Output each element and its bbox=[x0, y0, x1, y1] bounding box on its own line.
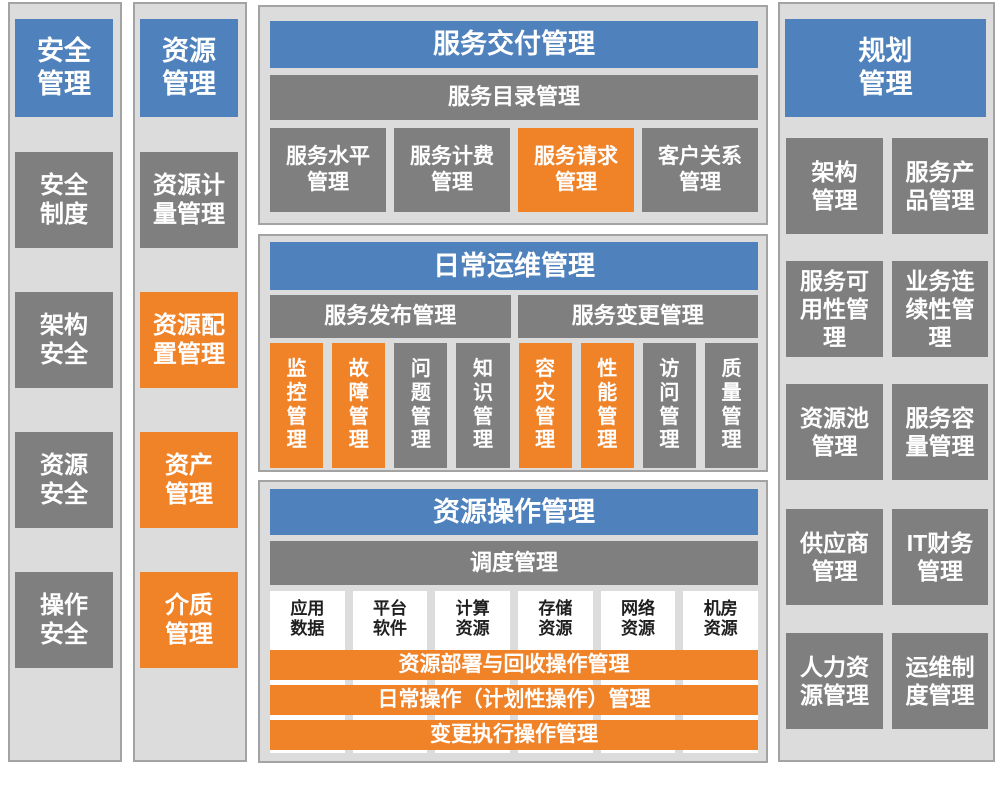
daily-operations-title: 日常运维管理 bbox=[270, 242, 758, 290]
resource-item-configuration: 资源配 置管理 bbox=[140, 292, 238, 388]
change-execution-bar: 变更执行操作管理 bbox=[270, 720, 758, 750]
resource-operations-grid: 应用 数据 平台 软件 计算 资源 存储 资源 网络 资源 机房 资源 资源部署… bbox=[270, 591, 758, 753]
monitoring-box: 监 控 管 理 bbox=[270, 343, 323, 468]
service-delivery-title: 服务交付管理 bbox=[270, 21, 758, 68]
service-billing-box: 服务计费 管理 bbox=[394, 128, 510, 212]
daily-operations-panel: 日常运维管理 服务发布管理 服务变更管理 监 控 管 理 故 障 管 理 问 题… bbox=[258, 234, 768, 472]
resource-pool-box: 资源池 管理 bbox=[786, 384, 883, 480]
security-item-institution: 安全 制度 bbox=[15, 152, 113, 248]
resource-title: 资源 管理 bbox=[140, 19, 238, 117]
service-change-bar: 服务变更管理 bbox=[518, 295, 759, 338]
resource-item-media: 介质 管理 bbox=[140, 572, 238, 668]
supplier-mgmt-box: 供应商 管理 bbox=[786, 509, 883, 605]
security-item-operation: 操作 安全 bbox=[15, 572, 113, 668]
quality-box: 质 量 管 理 bbox=[705, 343, 758, 468]
platform-software-label: 平台 软件 bbox=[353, 591, 428, 647]
customer-relation-box: 客户关系 管理 bbox=[642, 128, 758, 212]
human-resource-box: 人力资 源管理 bbox=[786, 633, 883, 729]
performance-box: 性 能 管 理 bbox=[581, 343, 634, 468]
security-item-architecture: 架构 安全 bbox=[15, 292, 113, 388]
resource-operations-title: 资源操作管理 bbox=[270, 489, 758, 535]
scheduling-bar: 调度管理 bbox=[270, 541, 758, 585]
access-box: 访 问 管 理 bbox=[643, 343, 696, 468]
planning-column-panel: 规划 管理 架构 管理 服务产 品管理 服务可 用性管 理 业务连 续性管 理 … bbox=[778, 2, 995, 762]
app-data-label: 应用 数据 bbox=[270, 591, 345, 647]
compute-resource-label: 计算 资源 bbox=[435, 591, 510, 647]
daily-operations-box-row: 监 控 管 理 故 障 管 理 问 题 管 理 知 识 管 理 容 灾 管 理 … bbox=[270, 343, 758, 468]
network-resource-label: 网络 资源 bbox=[601, 591, 676, 647]
knowledge-box: 知 识 管 理 bbox=[456, 343, 509, 468]
storage-resource-label: 存储 资源 bbox=[518, 591, 593, 647]
resource-item-metering: 资源计 量管理 bbox=[140, 152, 238, 248]
architecture-diagram: 安全 管理 安全 制度 架构 安全 资源 安全 操作 安全 资源 管理 资源计 … bbox=[0, 0, 1000, 785]
security-item-resource: 资源 安全 bbox=[15, 432, 113, 528]
security-title: 安全 管理 bbox=[15, 19, 113, 117]
service-level-box: 服务水平 管理 bbox=[270, 128, 386, 212]
fault-box: 故 障 管 理 bbox=[332, 343, 385, 468]
service-product-box: 服务产 品管理 bbox=[892, 138, 988, 234]
service-catalog-bar: 服务目录管理 bbox=[270, 75, 758, 120]
planning-title: 规划 管理 bbox=[785, 19, 986, 117]
resource-column-panel: 资源 管理 资源计 量管理 资源配 置管理 资产 管理 介质 管理 bbox=[133, 2, 247, 762]
deploy-recycle-bar: 资源部署与回收操作管理 bbox=[270, 650, 758, 680]
service-delivery-panel: 服务交付管理 服务目录管理 服务水平 管理 服务计费 管理 服务请求 管理 客户… bbox=[258, 5, 768, 225]
it-finance-box: IT财务 管理 bbox=[892, 509, 988, 605]
service-release-bar: 服务发布管理 bbox=[270, 295, 511, 338]
service-delivery-box-row: 服务水平 管理 服务计费 管理 服务请求 管理 客户关系 管理 bbox=[270, 128, 758, 212]
service-availability-box: 服务可 用性管 理 bbox=[786, 261, 883, 357]
service-request-box: 服务请求 管理 bbox=[518, 128, 634, 212]
resource-item-asset: 资产 管理 bbox=[140, 432, 238, 528]
disaster-recovery-box: 容 灾 管 理 bbox=[519, 343, 572, 468]
resource-operations-panel: 资源操作管理 调度管理 应用 数据 平台 软件 计算 资源 存储 资源 网络 资… bbox=[258, 480, 768, 763]
daily-operations-bar-row: 服务发布管理 服务变更管理 bbox=[270, 295, 758, 338]
business-continuity-box: 业务连 续性管 理 bbox=[892, 261, 988, 357]
planned-operation-bar: 日常操作（计划性操作）管理 bbox=[270, 685, 758, 715]
datacenter-resource-label: 机房 资源 bbox=[683, 591, 758, 647]
architecture-mgmt-box: 架构 管理 bbox=[786, 138, 883, 234]
service-capacity-box: 服务容 量管理 bbox=[892, 384, 988, 480]
ops-institution-box: 运维制 度管理 bbox=[892, 633, 988, 729]
problem-box: 问 题 管 理 bbox=[394, 343, 447, 468]
security-column-panel: 安全 管理 安全 制度 架构 安全 资源 安全 操作 安全 bbox=[8, 2, 122, 762]
